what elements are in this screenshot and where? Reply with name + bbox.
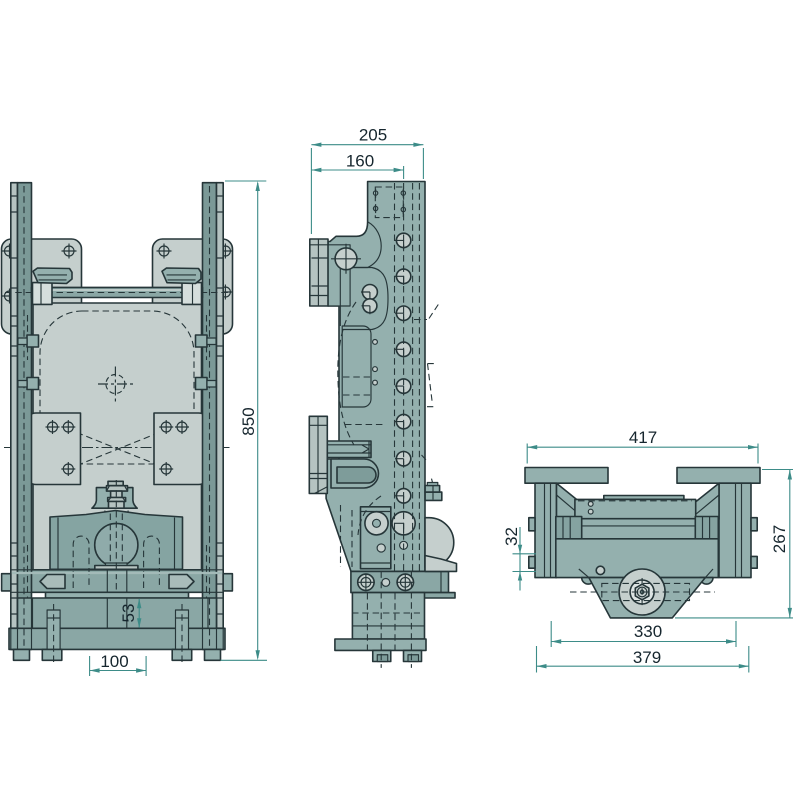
svg-text:417: 417 [629,428,657,447]
svg-text:850: 850 [239,407,258,435]
svg-text:267: 267 [770,525,789,553]
svg-text:32: 32 [502,527,521,546]
svg-text:160: 160 [346,152,374,171]
svg-text:100: 100 [100,652,128,671]
svg-text:379: 379 [633,648,661,667]
svg-text:205: 205 [359,126,387,145]
svg-text:330: 330 [634,622,662,641]
svg-text:53: 53 [119,604,138,623]
